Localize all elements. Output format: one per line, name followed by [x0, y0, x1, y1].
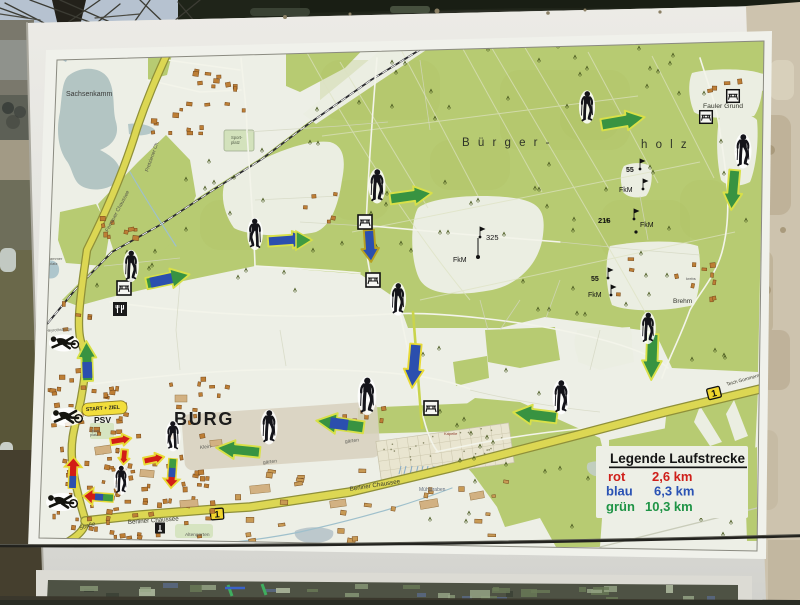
svg-text:h o l z: h o l z [641, 139, 689, 151]
svg-text:rot: rot [608, 469, 626, 484]
svg-text:blau: blau [606, 484, 633, 499]
svg-text:Mühlgraben: Mühlgraben [419, 487, 446, 493]
svg-text:PSV: PSV [94, 415, 111, 425]
svg-text:FkM: FkM [640, 222, 654, 229]
svg-text:Fauler Grund: Fauler Grund [703, 103, 743, 110]
svg-text:platz: platz [49, 261, 57, 266]
svg-text:Sachsenkamm: Sachsenkamm [66, 91, 112, 98]
svg-text:B ü r g e r -: B ü r g e r - [462, 137, 552, 149]
svg-text:FkM: FkM [453, 257, 467, 264]
svg-text:6,3 km: 6,3 km [654, 484, 694, 499]
svg-text:grün: grün [606, 499, 635, 514]
svg-text:Legende Laufstrecke: Legende Laufstrecke [610, 451, 746, 466]
svg-text:krebs: krebs [686, 276, 696, 281]
svg-text:325: 325 [486, 233, 499, 242]
svg-text:Brehm: Brehm [673, 298, 692, 305]
svg-text:platz: platz [90, 433, 98, 437]
svg-text:55: 55 [626, 167, 634, 174]
svg-text:216: 216 [598, 216, 611, 225]
svg-text:Kapelle: Kapelle [444, 431, 458, 436]
svg-text:55: 55 [591, 276, 599, 283]
svg-text:10,3 km: 10,3 km [645, 499, 693, 514]
svg-text:FkM: FkM [588, 292, 602, 299]
svg-text:Altengarten: Altengarten [185, 532, 210, 538]
svg-text:platz: platz [231, 140, 240, 145]
svg-text:FkM: FkM [619, 187, 633, 194]
svg-text:2,6 km: 2,6 km [652, 469, 692, 484]
svg-text:BURG: BURG [174, 409, 234, 429]
